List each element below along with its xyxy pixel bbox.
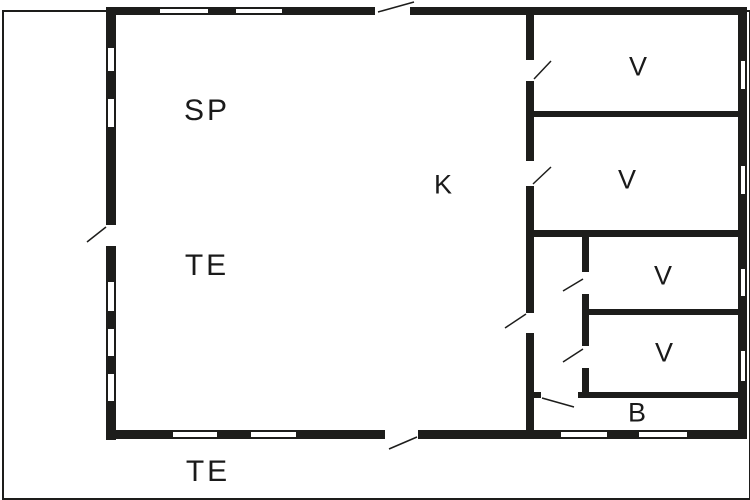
- room-label-v1: V: [629, 52, 647, 83]
- door-swing-bottom-entrance: [389, 437, 417, 449]
- room-label-k: K: [434, 170, 452, 201]
- door-swing-top-entrance: [378, 2, 414, 12]
- floor-plan: SP TE K V V V V B TE: [0, 0, 750, 500]
- room-label-te-outer: TE: [186, 455, 230, 489]
- room-label-v2: V: [618, 165, 636, 196]
- door-swing-k-hall: [505, 314, 526, 328]
- room-label-v4: V: [655, 338, 673, 369]
- door-swing-left-entrance: [87, 227, 106, 242]
- door-swing-v2: [533, 167, 551, 184]
- door-swing-v1: [534, 61, 551, 79]
- room-label-b: B: [628, 398, 646, 429]
- room-label-te-inner: TE: [185, 249, 229, 283]
- door-swing-b: [542, 398, 574, 407]
- door-swing-v4: [563, 349, 583, 362]
- room-label-v3: V: [654, 261, 672, 292]
- room-label-sp: SP: [184, 94, 230, 128]
- door-swing-v3: [563, 279, 583, 291]
